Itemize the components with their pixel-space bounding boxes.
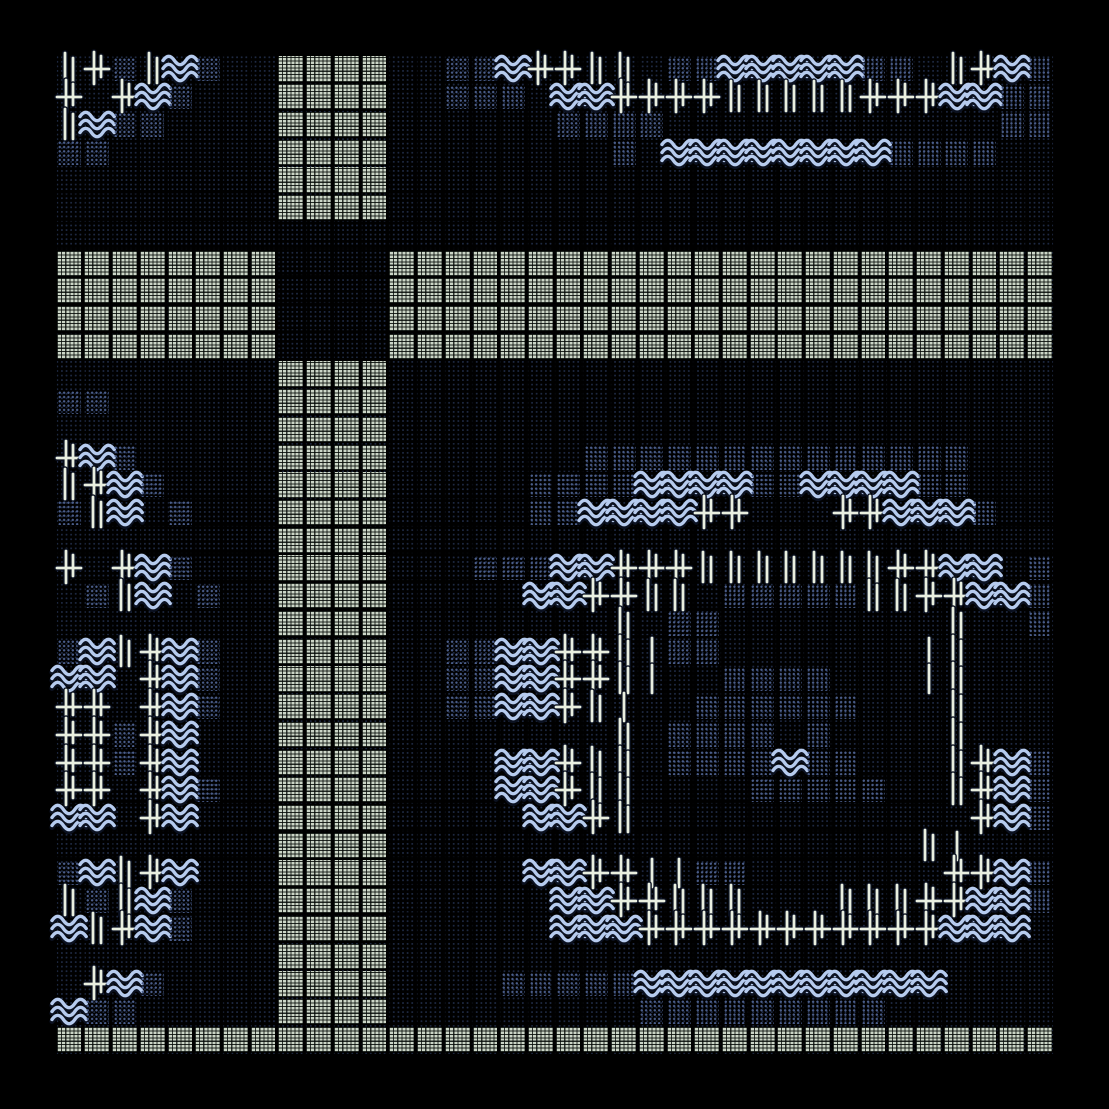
cross-icon <box>887 78 915 114</box>
cross-icon <box>638 83 666 111</box>
light-tile-texture <box>306 472 331 497</box>
cross-icon <box>693 915 721 943</box>
light-tile <box>277 194 305 222</box>
light-tile <box>527 305 555 333</box>
cross-icon <box>693 499 721 527</box>
light-tile-texture <box>972 278 997 303</box>
light-tile <box>194 250 222 278</box>
light-tile-texture <box>334 472 359 497</box>
light-tile-texture <box>306 888 331 913</box>
dark-dots-tile <box>111 721 139 749</box>
cross-icon <box>832 910 860 946</box>
wave-icon <box>55 915 83 943</box>
dark-dots-tile <box>749 776 777 804</box>
light-tile-texture <box>417 1027 442 1052</box>
light-tile <box>333 693 361 721</box>
light-tile-texture <box>306 860 331 885</box>
light-tile-texture <box>306 528 331 553</box>
light-tile <box>83 305 111 333</box>
light-tile <box>333 776 361 804</box>
cross-icon <box>832 499 860 527</box>
dark-dots-texture <box>168 556 192 581</box>
light-tile <box>333 804 361 832</box>
light-tile-texture <box>84 1027 109 1052</box>
wave-icon <box>994 581 1030 611</box>
light-tile-texture <box>417 334 442 359</box>
light-tile-texture <box>805 334 830 359</box>
cross-icon <box>832 915 860 943</box>
cross-icon <box>554 688 582 724</box>
light-tile-texture <box>861 251 886 276</box>
light-tile <box>277 610 305 638</box>
light-tile <box>554 305 582 333</box>
light-tile-texture <box>916 334 941 359</box>
dark-dots-texture <box>889 445 913 470</box>
cross-icon <box>610 887 638 915</box>
light-tile <box>499 333 527 361</box>
light-tile-texture <box>722 251 747 276</box>
light-tile-texture <box>473 251 498 276</box>
light-tile-texture <box>140 306 165 331</box>
light-tile-texture <box>306 694 331 719</box>
dark-dots-texture <box>113 750 137 775</box>
light-tile <box>250 333 278 361</box>
dark-dots-tile <box>194 582 222 610</box>
dark-dots-tile <box>1026 887 1054 915</box>
light-tile <box>305 582 333 610</box>
light-tile <box>721 333 749 361</box>
double-bar-icon <box>721 554 749 582</box>
light-tile-texture <box>944 306 969 331</box>
light-tile <box>277 915 305 943</box>
light-tile-texture <box>306 750 331 775</box>
light-tile <box>277 527 305 555</box>
double-bar-icon <box>776 83 804 111</box>
wave-icon <box>111 471 139 499</box>
dark-dots-tile <box>749 998 777 1026</box>
light-tile-texture <box>57 278 82 303</box>
light-tile-texture <box>112 1027 137 1052</box>
dark-dots-texture <box>861 999 885 1024</box>
wave-icon <box>578 886 614 916</box>
wave-icon <box>166 721 194 749</box>
light-tile <box>388 277 416 305</box>
single-bar-icon <box>638 661 666 695</box>
double-bar-icon <box>804 554 832 582</box>
light-tile <box>416 250 444 278</box>
double-bar-icon <box>749 83 777 111</box>
light-tile-texture <box>334 583 359 608</box>
light-tile <box>277 970 305 998</box>
light-tile <box>305 444 333 472</box>
light-tile <box>527 1026 555 1054</box>
dark-dots-texture <box>806 584 830 609</box>
cross-icon <box>527 50 555 86</box>
wave-icon <box>166 693 194 721</box>
cross-icon <box>693 494 721 530</box>
light-tile <box>943 305 971 333</box>
light-tile <box>305 804 333 832</box>
light-tile-texture <box>445 278 470 303</box>
light-tile-texture <box>694 334 719 359</box>
light-tile <box>915 250 943 278</box>
dark-dots-texture <box>917 140 941 165</box>
light-tile-texture <box>500 334 525 359</box>
light-tile-texture <box>362 944 387 969</box>
dark-dots-tile <box>665 721 693 749</box>
light-tile-texture <box>667 278 692 303</box>
light-tile-texture <box>278 1027 303 1052</box>
wave-icon <box>166 776 194 804</box>
dark-dots-tile <box>832 444 860 472</box>
dark-dots-texture <box>861 778 885 803</box>
dark-dots-tile <box>804 721 832 749</box>
double-bar-icon <box>83 911 111 945</box>
light-tile-texture <box>362 112 387 137</box>
cross-icon <box>749 910 777 946</box>
light-tile <box>166 305 194 333</box>
dark-dots-texture <box>1028 584 1052 609</box>
light-tile <box>388 250 416 278</box>
wave-icon <box>111 499 139 527</box>
dark-dots-tile <box>721 582 749 610</box>
double-bar-icon <box>55 467 83 501</box>
light-tile <box>776 1026 804 1054</box>
light-tile <box>333 749 361 777</box>
dark-dots-texture <box>1000 112 1024 137</box>
wave-icon <box>135 82 171 112</box>
wave-icon <box>523 692 559 722</box>
double-bar-icon <box>804 79 832 113</box>
double-bar-icon <box>83 915 111 943</box>
light-tile <box>333 859 361 887</box>
light-tile <box>582 277 610 305</box>
dark-dots-texture <box>1028 805 1052 830</box>
light-tile-texture <box>278 84 303 109</box>
light-tile-texture <box>445 334 470 359</box>
dark-dots-texture <box>140 112 164 137</box>
dark-dots-tile <box>943 139 971 167</box>
light-tile-texture <box>556 278 581 303</box>
light-tile <box>554 333 582 361</box>
light-tile <box>277 721 305 749</box>
light-tile-texture <box>639 1027 664 1052</box>
light-tile <box>333 388 361 416</box>
light-tile <box>360 776 388 804</box>
light-tile-texture <box>362 417 387 442</box>
light-tile-texture <box>334 971 359 996</box>
dark-dots-texture <box>1028 112 1052 137</box>
dark-dots-texture <box>972 500 996 525</box>
double-bar-icon <box>832 83 860 111</box>
light-tile-texture <box>722 334 747 359</box>
dark-dots-texture <box>612 445 636 470</box>
light-tile-texture <box>306 389 331 414</box>
double-bar-icon <box>804 83 832 111</box>
light-tile-texture <box>750 278 775 303</box>
light-tile-texture <box>528 251 553 276</box>
light-tile-texture <box>334 555 359 580</box>
light-tile <box>277 638 305 666</box>
light-tile <box>277 859 305 887</box>
light-tile-texture <box>334 528 359 553</box>
wave-icon <box>139 554 167 582</box>
light-tile-texture <box>140 1027 165 1052</box>
light-tile <box>55 277 83 305</box>
light-tile-texture <box>362 445 387 470</box>
double-bar-icon <box>832 79 860 113</box>
light-tile-texture <box>278 112 303 137</box>
dark-dots-tile <box>776 444 804 472</box>
wave-icon <box>139 887 167 915</box>
light-tile <box>693 250 721 278</box>
dark-dots-tile <box>1026 749 1054 777</box>
cross-icon <box>582 582 610 610</box>
dark-dots-tile <box>638 998 666 1026</box>
dark-dots-texture <box>57 639 81 664</box>
light-tile-texture <box>805 1027 830 1052</box>
light-tile-texture <box>362 777 387 802</box>
dark-dots-tile <box>776 665 804 693</box>
light-tile-texture <box>362 528 387 553</box>
dark-dots-texture <box>113 722 137 747</box>
double-bar-icon <box>111 638 139 666</box>
light-tile <box>83 250 111 278</box>
dark-dots-texture <box>778 778 802 803</box>
cross-icon <box>693 910 721 946</box>
dark-dots-tile <box>139 471 167 499</box>
light-tile-texture <box>528 1027 553 1052</box>
dark-dots-texture <box>695 722 719 747</box>
cross-icon <box>582 577 610 613</box>
light-tile-texture <box>251 278 276 303</box>
light-tile <box>638 1026 666 1054</box>
light-tile <box>1026 1026 1054 1054</box>
dark-dots-tile <box>582 970 610 998</box>
dark-dots-tile <box>749 471 777 499</box>
light-tile <box>55 305 83 333</box>
dark-dots-texture <box>57 861 81 886</box>
dark-dots-tile <box>832 749 860 777</box>
light-tile <box>277 582 305 610</box>
cross-icon <box>582 799 610 835</box>
light-tile-texture <box>362 140 387 165</box>
light-tile <box>222 305 250 333</box>
light-tile <box>360 471 388 499</box>
dark-dots-texture <box>85 390 109 415</box>
light-tile <box>471 1026 499 1054</box>
dark-dots-texture <box>639 445 663 470</box>
light-tile <box>749 1026 777 1054</box>
light-tile <box>582 1026 610 1054</box>
dark-dots-texture <box>501 85 525 110</box>
light-tile <box>998 277 1026 305</box>
double-bar-icon <box>832 550 860 584</box>
light-tile <box>333 194 361 222</box>
wave-icon <box>550 858 586 888</box>
dark-dots-tile <box>83 139 111 167</box>
dark-dots-tile <box>998 111 1026 139</box>
cross-icon <box>554 50 582 86</box>
light-tile <box>333 111 361 139</box>
double-bar-icon <box>887 578 915 612</box>
light-tile-texture <box>473 334 498 359</box>
cross-icon <box>859 910 887 946</box>
light-tile-texture <box>306 361 331 386</box>
dark-dots-texture <box>556 112 580 137</box>
wave-icon <box>943 499 971 527</box>
dark-dots-tile <box>804 693 832 721</box>
double-bar-icon <box>749 550 777 584</box>
wave-icon <box>966 553 1002 583</box>
light-tile <box>305 693 333 721</box>
light-tile <box>166 250 194 278</box>
wave-icon <box>578 82 614 112</box>
light-tile-texture <box>306 500 331 525</box>
light-tile-texture <box>694 306 719 331</box>
cross-icon <box>582 854 610 890</box>
dark-dots-texture <box>834 750 858 775</box>
dark-dots-tile <box>554 111 582 139</box>
light-tile <box>360 499 388 527</box>
light-tile-texture <box>278 694 303 719</box>
light-tile-texture <box>112 251 137 276</box>
light-tile <box>360 970 388 998</box>
dark-dots-texture <box>917 473 941 498</box>
light-tile <box>360 527 388 555</box>
light-tile <box>416 1026 444 1054</box>
dark-dots-tile <box>638 444 666 472</box>
wave-icon <box>776 749 804 777</box>
light-tile-texture <box>667 334 692 359</box>
light-tile <box>887 1026 915 1054</box>
light-tile <box>970 305 998 333</box>
cross-icon <box>721 915 749 943</box>
light-tile-texture <box>805 251 830 276</box>
light-tile-texture <box>278 583 303 608</box>
light-tile-texture <box>195 251 220 276</box>
light-tile-texture <box>362 666 387 691</box>
light-tile-texture <box>528 278 553 303</box>
light-tile <box>305 832 333 860</box>
light-tile-texture <box>667 1027 692 1052</box>
dark-dots-texture <box>85 584 109 609</box>
dark-dots-tile <box>749 444 777 472</box>
light-tile-texture <box>362 805 387 830</box>
light-tile <box>83 1026 111 1054</box>
light-tile-texture <box>833 251 858 276</box>
light-tile <box>360 887 388 915</box>
light-tile <box>638 333 666 361</box>
cross-icon <box>610 78 638 114</box>
double-bar-icon <box>943 772 971 806</box>
cross-icon <box>915 582 943 610</box>
light-tile <box>277 749 305 777</box>
dark-dots-tile <box>970 139 998 167</box>
light-tile-texture <box>112 334 137 359</box>
light-tile <box>776 305 804 333</box>
light-tile <box>360 832 388 860</box>
wave-icon <box>162 637 198 667</box>
light-tile-texture <box>278 140 303 165</box>
light-tile-texture <box>916 1027 941 1052</box>
double-bar-icon <box>111 634 139 668</box>
dark-dots-texture <box>1028 889 1052 914</box>
dark-dots-tile <box>582 111 610 139</box>
wave-icon <box>998 915 1026 943</box>
wave-icon <box>939 498 975 528</box>
light-tile <box>943 1026 971 1054</box>
light-tile-texture <box>362 500 387 525</box>
dark-dots-tile <box>859 444 887 472</box>
light-tile <box>832 1026 860 1054</box>
dark-dots-tile <box>776 776 804 804</box>
light-tile-texture <box>389 251 414 276</box>
light-tile-texture <box>278 860 303 885</box>
dark-dots-tile <box>749 693 777 721</box>
dark-dots-texture <box>445 639 469 664</box>
light-tile-texture <box>278 722 303 747</box>
light-tile <box>222 250 250 278</box>
dark-dots-texture <box>944 140 968 165</box>
dark-dots-texture <box>806 722 830 747</box>
light-tile-texture <box>777 334 802 359</box>
light-tile <box>139 277 167 305</box>
light-tile-texture <box>306 167 331 192</box>
light-tile <box>55 250 83 278</box>
light-tile <box>776 250 804 278</box>
light-tile <box>277 1026 305 1054</box>
light-tile-texture <box>223 306 248 331</box>
light-tile-texture <box>362 472 387 497</box>
light-tile <box>305 998 333 1026</box>
dark-dots-texture <box>667 750 691 775</box>
light-tile <box>721 250 749 278</box>
cross-icon <box>610 882 638 918</box>
light-tile-texture <box>750 306 775 331</box>
wave-icon <box>162 664 198 694</box>
light-tile-texture <box>278 971 303 996</box>
dark-dots-texture <box>501 972 525 997</box>
wave-icon <box>135 581 171 611</box>
dark-dots-tile <box>943 444 971 472</box>
light-tile <box>166 277 194 305</box>
light-tile <box>1026 250 1054 278</box>
light-tile-texture <box>500 1027 525 1052</box>
cross-icon <box>859 78 887 114</box>
cross-icon <box>665 83 693 111</box>
light-tile-texture <box>473 1027 498 1052</box>
dark-dots-tile <box>1026 610 1054 638</box>
light-tile <box>194 305 222 333</box>
light-tile <box>721 1026 749 1054</box>
light-tile <box>360 83 388 111</box>
light-tile-texture <box>306 1027 331 1052</box>
dark-dots-texture <box>667 999 691 1024</box>
light-tile <box>527 333 555 361</box>
light-tile <box>139 333 167 361</box>
double-bar-icon <box>804 550 832 584</box>
light-tile <box>83 277 111 305</box>
cross-icon <box>83 50 111 86</box>
wave-icon <box>162 775 198 805</box>
light-tile <box>333 360 361 388</box>
light-tile <box>360 444 388 472</box>
dark-dots-tile <box>721 693 749 721</box>
light-tile <box>360 998 388 1026</box>
dark-dots-tile <box>665 749 693 777</box>
dark-dots-texture <box>750 722 774 747</box>
